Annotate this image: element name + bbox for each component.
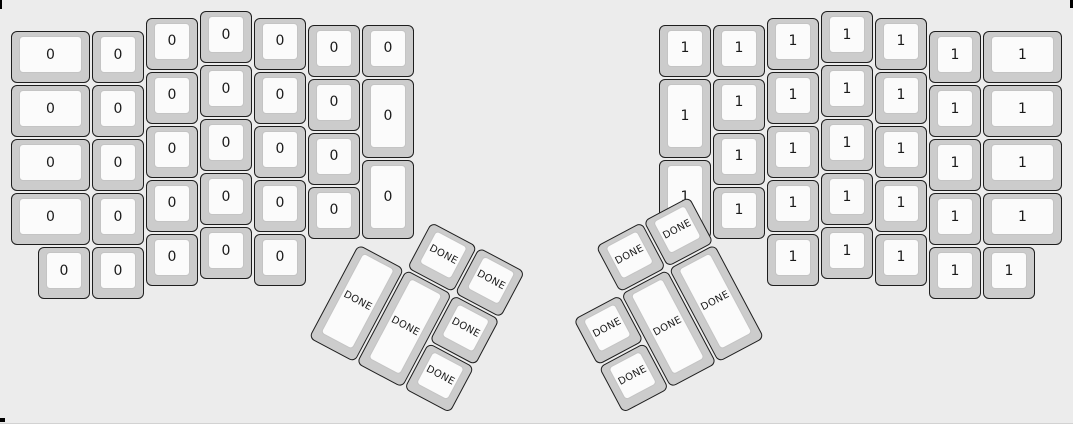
keycap-top-surface: 0: [46, 252, 82, 289]
keycap-top-surface: 1: [991, 90, 1054, 127]
keycap-top-surface: 0: [154, 239, 190, 276]
keycap-right-main-0[interactable]: 1: [659, 25, 711, 77]
keycap-label: 1: [897, 250, 906, 264]
keycap-right-main-29[interactable]: 1: [875, 234, 927, 286]
keycap-label: 0: [168, 34, 177, 48]
keycap-top-surface: 0: [316, 30, 352, 67]
keycap-top-surface: 0: [100, 36, 136, 73]
keycap-top-surface: 0: [208, 232, 244, 269]
keycap-top-surface: 0: [370, 30, 406, 67]
keycap-label: 0: [46, 156, 55, 170]
keycap-left-main-16[interactable]: 0: [146, 126, 198, 178]
keycap-label: 1: [897, 196, 906, 210]
keycap-label: 1: [951, 48, 960, 62]
keycap-top-surface: 1: [991, 198, 1054, 235]
keycap-label: DONE: [389, 315, 421, 338]
keycap-label: 0: [330, 203, 339, 217]
keycap-top-surface: 1: [991, 36, 1054, 73]
keycap-right-main-18[interactable]: 1: [929, 139, 981, 191]
keycap-label: 0: [276, 34, 285, 48]
keycap-left-main-6[interactable]: 0: [362, 25, 414, 77]
keycap-top-surface: 0: [262, 77, 298, 114]
keycap-right-main-12[interactable]: 1: [929, 85, 981, 137]
keycap-top-surface: 1: [721, 192, 757, 229]
keycap-label: 1: [789, 34, 798, 48]
keycap-top-surface: DONE: [653, 205, 702, 255]
keycap-top-surface: 0: [208, 124, 244, 161]
keycap-label: DONE: [428, 243, 460, 266]
keycap-right-main-31[interactable]: 1: [983, 247, 1035, 299]
keycap-right-main-15[interactable]: 1: [767, 126, 819, 178]
keycap-label: 0: [276, 196, 285, 210]
keycap-top-surface: DONE: [416, 351, 465, 401]
keycap-top-surface: 1: [937, 198, 973, 235]
keycap-label: DONE: [475, 269, 507, 292]
keycap-label: 1: [843, 136, 852, 150]
keycap-top-surface: 1: [937, 36, 973, 73]
keycap-top-surface: DONE: [583, 303, 632, 353]
keycap-label: 1: [789, 196, 798, 210]
keycap-label: 1: [897, 88, 906, 102]
keycap-top-surface: 0: [316, 138, 352, 175]
keycap-label: 1: [681, 41, 690, 55]
keycap-label: 1: [1018, 156, 1027, 170]
keycap-label: 0: [384, 41, 393, 55]
keycap-label: 1: [897, 142, 906, 156]
keycap-label: 0: [46, 102, 55, 116]
keycap-label: DONE: [614, 243, 646, 266]
keycap-right-main-25[interactable]: 1: [929, 193, 981, 245]
keycap-label: 0: [114, 102, 123, 116]
keycap-right-main-17[interactable]: 1: [875, 126, 927, 178]
keycap-top-surface: 1: [775, 131, 811, 168]
keycap-top-surface: 1: [829, 232, 865, 269]
keycap-right-main-24[interactable]: 1: [875, 180, 927, 232]
keycap-label: 1: [951, 210, 960, 224]
keycap-label: 1: [843, 82, 852, 96]
keycap-label: 0: [384, 109, 393, 123]
keycap-label: 1: [789, 142, 798, 156]
keycap-top-surface: 0: [316, 192, 352, 229]
keycap-top-surface: 1: [775, 239, 811, 276]
keycap-left-main-5[interactable]: 0: [308, 25, 360, 77]
keycap-right-main-1[interactable]: 1: [713, 25, 765, 77]
keycap-top-surface: 1: [991, 252, 1027, 289]
keycap-top-surface: 0: [262, 239, 298, 276]
keycap-right-main-27[interactable]: 1: [767, 234, 819, 286]
keycap-top-surface: DONE: [466, 256, 515, 306]
keycap-label: 0: [114, 264, 123, 278]
keycap-label: 0: [222, 190, 231, 204]
keycap-label: 0: [222, 82, 231, 96]
keycap-label: 0: [60, 264, 69, 278]
keycap-label: DONE: [617, 364, 649, 387]
keycap-top-surface: 0: [154, 77, 190, 114]
keycap-left-main-23[interactable]: 0: [200, 173, 252, 225]
keycap-label: 1: [951, 264, 960, 278]
keycap-top-surface: 1: [991, 144, 1054, 181]
keycap-left-main-12[interactable]: 0: [308, 79, 360, 131]
keycap-top-surface: 0: [100, 144, 136, 181]
keycap-top-surface: 0: [370, 165, 406, 229]
keycap-label: DONE: [591, 316, 623, 339]
keycap-top-surface: 0: [208, 70, 244, 107]
keycap-label: 1: [681, 109, 690, 123]
keycap-top-surface: DONE: [605, 230, 654, 280]
keycap-label: 1: [843, 28, 852, 42]
keycap-top-surface: 1: [775, 185, 811, 222]
keycap-top-surface: 1: [667, 30, 703, 67]
keycap-top-surface: 0: [19, 36, 82, 73]
keycap-label: 0: [222, 28, 231, 42]
keycap-right-main-6[interactable]: 1: [983, 31, 1062, 83]
keycap-left-main-19[interactable]: 0: [308, 133, 360, 185]
keycap-top-surface: 0: [19, 144, 82, 181]
keycap-right-main-7[interactable]: 1: [659, 79, 711, 158]
keycap-label: 1: [951, 102, 960, 116]
keycap-label: 1: [1018, 210, 1027, 224]
keycap-label: DONE: [652, 315, 684, 338]
keycap-left-main-25[interactable]: 0: [308, 187, 360, 239]
keycap-right-main-13[interactable]: 1: [983, 85, 1062, 137]
keycap-left-main-28[interactable]: 0: [92, 247, 144, 299]
keycap-top-surface: 0: [316, 84, 352, 121]
keycap-right-main-26[interactable]: 1: [983, 193, 1062, 245]
keycap-label: 0: [222, 136, 231, 150]
canvas-corner-mark-top-left: [0, 0, 2, 9]
keycap-label: 1: [735, 95, 744, 109]
keycap-top-surface: 0: [100, 252, 136, 289]
keycap-left-main-21[interactable]: 0: [92, 193, 144, 245]
keycap-right-main-8[interactable]: 1: [713, 79, 765, 131]
keycap-right-main-23[interactable]: 1: [821, 173, 873, 225]
keycap-top-surface: 1: [883, 131, 919, 168]
keycap-left-main-3[interactable]: 0: [200, 11, 252, 63]
keycap-label: 1: [789, 250, 798, 264]
keycap-left-main-14[interactable]: 0: [11, 139, 90, 191]
keycap-top-surface: 1: [883, 77, 919, 114]
keycap-top-surface: 0: [19, 90, 82, 127]
keycap-label: 0: [276, 250, 285, 264]
keycap-left-main-0[interactable]: 0: [11, 31, 90, 83]
keycap-label: 0: [384, 190, 393, 204]
keycap-top-surface: 0: [100, 90, 136, 127]
keycap-top-surface: 0: [262, 185, 298, 222]
keycap-top-surface: 1: [883, 23, 919, 60]
keycap-top-surface: 1: [667, 84, 703, 148]
canvas-corner-mark-bottom-left: [0, 418, 5, 422]
keycap-top-surface: DONE: [441, 303, 490, 353]
keycap-top-surface: 0: [154, 185, 190, 222]
keycap-label: DONE: [424, 364, 456, 387]
keycap-top-surface: 1: [775, 77, 811, 114]
keycap-label: 1: [1018, 48, 1027, 62]
keycap-top-surface: 1: [829, 16, 865, 53]
keycap-label: 0: [168, 196, 177, 210]
keycap-left-main-13[interactable]: 0: [362, 79, 414, 158]
keycap-label: DONE: [661, 218, 693, 241]
keycap-right-main-11[interactable]: 1: [875, 72, 927, 124]
keycap-label: 0: [114, 156, 123, 170]
keycap-top-surface: 0: [100, 198, 136, 235]
keycap-top-surface: 1: [829, 70, 865, 107]
keycap-left-main-2[interactable]: 0: [146, 18, 198, 70]
keycap-left-main-31[interactable]: 0: [254, 234, 306, 286]
keycap-left-main-9[interactable]: 0: [146, 72, 198, 124]
keycap-label: 0: [222, 244, 231, 258]
keycap-right-main-4[interactable]: 1: [875, 18, 927, 70]
keycap-top-surface: 0: [208, 178, 244, 215]
keycap-label: 1: [897, 34, 906, 48]
keycap-right-main-19[interactable]: 1: [983, 139, 1062, 191]
keycap-label: 0: [330, 41, 339, 55]
keycap-right-main-28[interactable]: 1: [821, 227, 873, 279]
keycap-top-surface: 1: [721, 138, 757, 175]
keycap-top-surface: 0: [262, 131, 298, 168]
keycap-label: 0: [168, 250, 177, 264]
keycap-label: 0: [46, 48, 55, 62]
keycap-label: 0: [114, 48, 123, 62]
keycap-left-main-17[interactable]: 0: [200, 119, 252, 171]
keycap-top-surface: DONE: [608, 351, 657, 401]
keycap-label: 0: [330, 149, 339, 163]
keycap-right-main-9[interactable]: 1: [767, 72, 819, 124]
keycap-left-main-4[interactable]: 0: [254, 18, 306, 70]
keycap-top-surface: 0: [262, 23, 298, 60]
keycap-left-main-24[interactable]: 0: [254, 180, 306, 232]
keycap-label: 1: [1005, 264, 1014, 278]
keycap-top-surface: 1: [937, 144, 973, 181]
keycap-top-surface: 0: [154, 23, 190, 60]
keycap-left-main-22[interactable]: 0: [146, 180, 198, 232]
keycap-right-main-16[interactable]: 1: [821, 119, 873, 171]
keycap-top-surface: 1: [721, 30, 757, 67]
keycap-top-surface: 1: [829, 124, 865, 161]
keycap-top-surface: 1: [775, 23, 811, 60]
keycap-label: 0: [276, 142, 285, 156]
keycap-label: 1: [735, 149, 744, 163]
keycap-left-main-27[interactable]: 0: [38, 247, 90, 299]
keycap-label: 0: [168, 88, 177, 102]
keycap-label: 0: [276, 88, 285, 102]
keycap-label: DONE: [699, 290, 731, 313]
keycap-top-surface: 0: [154, 131, 190, 168]
keycap-label: DONE: [450, 316, 482, 339]
keycap-left-main-8[interactable]: 0: [92, 85, 144, 137]
keycap-label: 0: [330, 95, 339, 109]
keyboard-layout-canvas: 00000000000000000000000000000000 1111111…: [0, 0, 1073, 424]
keycap-right-main-30[interactable]: 1: [929, 247, 981, 299]
keycap-top-surface: 0: [208, 16, 244, 53]
keycap-right-main-5[interactable]: 1: [929, 31, 981, 83]
keycap-top-surface: 1: [883, 185, 919, 222]
keycap-label: 1: [735, 203, 744, 217]
keycap-label: 0: [46, 210, 55, 224]
keycap-label: 1: [1018, 102, 1027, 116]
keycap-top-surface: 1: [721, 84, 757, 121]
keycap-top-surface: 0: [370, 84, 406, 148]
keycap-left-main-10[interactable]: 0: [200, 65, 252, 117]
keycap-left-main-11[interactable]: 0: [254, 72, 306, 124]
keycap-right-main-3[interactable]: 1: [821, 11, 873, 63]
keycap-label: 1: [843, 190, 852, 204]
keycap-left-main-30[interactable]: 0: [200, 227, 252, 279]
keycap-left-main-7[interactable]: 0: [11, 85, 90, 137]
keycap-left-main-15[interactable]: 0: [92, 139, 144, 191]
keycap-right-main-10[interactable]: 1: [821, 65, 873, 117]
keycap-top-surface: 1: [829, 178, 865, 215]
keycap-right-main-21[interactable]: 1: [713, 187, 765, 239]
keycap-left-main-18[interactable]: 0: [254, 126, 306, 178]
keycap-top-surface: 1: [937, 252, 973, 289]
keycap-left-main-1[interactable]: 0: [92, 31, 144, 83]
keycap-label: 1: [735, 41, 744, 55]
keycap-top-surface: 1: [937, 90, 973, 127]
keycap-label: 1: [789, 88, 798, 102]
keycap-right-main-22[interactable]: 1: [767, 180, 819, 232]
keycap-label: 0: [168, 142, 177, 156]
keycap-right-main-14[interactable]: 1: [713, 133, 765, 185]
keycap-left-main-26[interactable]: 0: [362, 160, 414, 239]
keycap-left-main-29[interactable]: 0: [146, 234, 198, 286]
keycap-left-main-20[interactable]: 0: [11, 193, 90, 245]
keycap-label: 0: [114, 210, 123, 224]
keycap-label: 1: [951, 156, 960, 170]
keycap-label: 1: [843, 244, 852, 258]
keycap-top-surface: 1: [883, 239, 919, 276]
keycap-label: DONE: [342, 290, 374, 313]
keycap-top-surface: 0: [19, 198, 82, 235]
keycap-top-surface: DONE: [419, 230, 468, 280]
keycap-right-main-2[interactable]: 1: [767, 18, 819, 70]
